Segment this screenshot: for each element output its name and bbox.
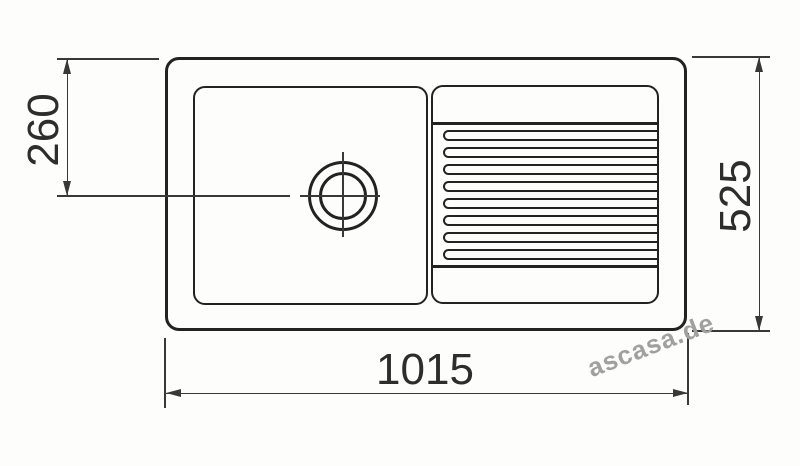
drainboard-ridge: [443, 249, 657, 260]
arrowhead-525-down: [755, 316, 763, 331]
drainboard-ridge: [443, 147, 657, 158]
extension-line-1015-left: [164, 338, 166, 408]
technical-drawing-canvas: 260 525 1015 ascasa.de: [0, 0, 800, 466]
arrowhead-1015-left: [166, 389, 181, 397]
extension-line-260-top: [57, 58, 159, 60]
arrowhead-525-up: [755, 57, 763, 72]
drainboard-ridge: [443, 164, 657, 175]
drain-centerline-horizontal: [300, 195, 380, 197]
drainboard-ridge: [443, 181, 657, 192]
extension-line-260-bottom: [57, 195, 290, 197]
drainboard-ridge: [443, 198, 657, 209]
drainboard-ridge: [443, 232, 657, 243]
dimension-label-525: 525: [714, 126, 758, 266]
dimension-label-260: 260: [22, 60, 66, 200]
drain-centerline-vertical: [342, 152, 344, 237]
arrowhead-1015-right: [673, 389, 688, 397]
drainboard-bottom-divider: [433, 265, 657, 268]
drainboard-panel: [431, 85, 659, 304]
drainboard-ridge: [443, 130, 657, 141]
drainboard-top-divider: [433, 122, 657, 125]
drainboard-ridge: [443, 215, 657, 226]
dimension-label-1015: 1015: [345, 348, 505, 392]
